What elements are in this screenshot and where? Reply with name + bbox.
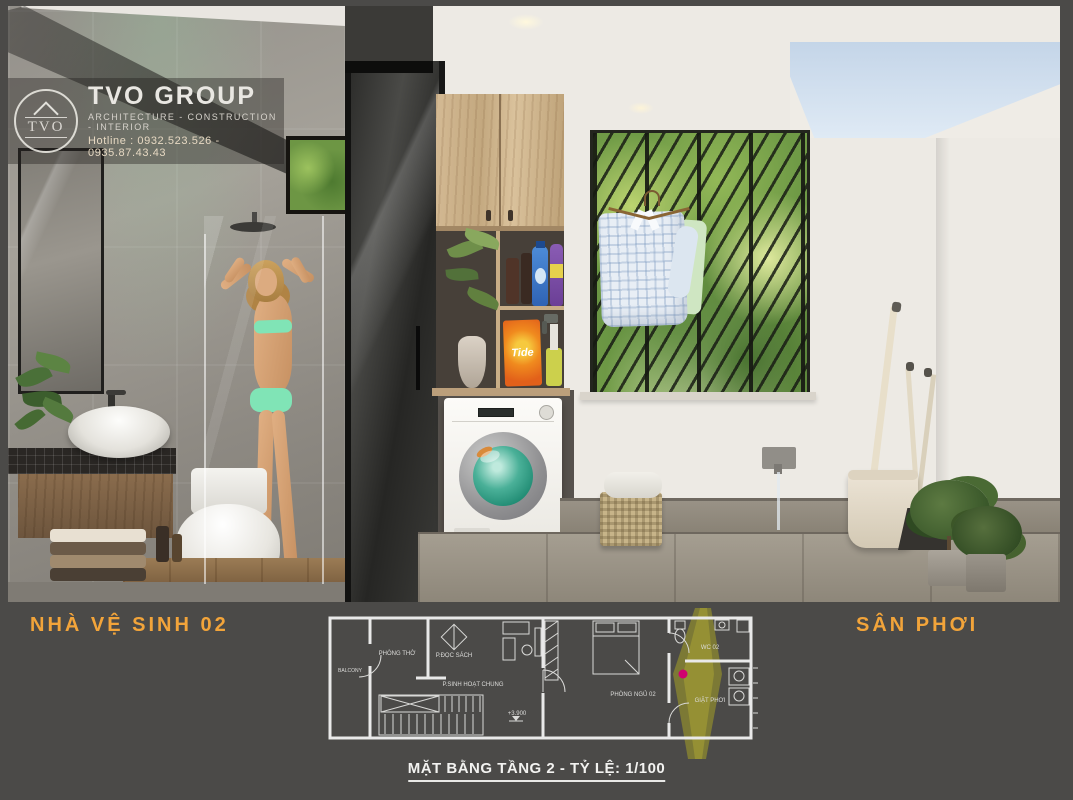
plan-caption: MẶT BẰNG TẦNG 2 - TỶ LỆ: 1/100 — [408, 760, 666, 782]
spray-bottle-trigger — [542, 321, 547, 334]
cabinet-handle — [486, 210, 491, 221]
mop-handle-cap — [891, 301, 901, 312]
plan-room-label-reading: P.ĐỌC SÁCH — [436, 652, 473, 659]
shower-head — [230, 222, 276, 232]
plan-room-label-worship: PHÒNG THỜ — [379, 650, 416, 657]
plan-room-label-laundry: GIẶT PHƠI — [695, 697, 726, 704]
door-glass-reflection — [351, 61, 439, 602]
shower-glass-edge — [204, 234, 206, 584]
washer-display — [478, 408, 514, 417]
towel — [50, 555, 146, 568]
figure-bikini-top — [254, 319, 292, 333]
plan-room-label-wc: WC 02 — [701, 645, 720, 651]
sink-faucet-spout — [106, 390, 126, 395]
ceiling-downlight — [508, 14, 544, 30]
potted-plant-foliage — [952, 506, 1022, 560]
bottle-cap — [536, 241, 545, 248]
plant-vase — [458, 336, 486, 388]
hanger-hook — [644, 190, 660, 206]
laundry-basket — [600, 492, 662, 546]
door-header — [345, 6, 433, 66]
door-handle — [416, 326, 420, 390]
shelf-divider — [500, 306, 564, 310]
ceiling-downlight — [628, 102, 654, 114]
bathroom-floor — [8, 582, 345, 602]
laundry-clothes — [604, 472, 662, 498]
skylight-opening — [790, 42, 1060, 138]
label-bathroom: NHÀ VỆ SINH 02 — [30, 614, 229, 637]
dark-bottle — [506, 258, 519, 304]
figure-face — [255, 268, 277, 296]
figure-bikini-bottom — [250, 388, 292, 412]
location-marker — [679, 670, 688, 679]
bottle-label — [535, 268, 546, 284]
leaf — [14, 405, 45, 434]
plan-level-mark: +3.900 — [508, 711, 527, 717]
amenity-bottle — [156, 526, 169, 562]
company-tagline: ARCHITECTURE - CONSTRUCTION - INTERIOR — [88, 112, 278, 132]
cabinet-door-seam — [499, 94, 501, 226]
roof-fascia — [790, 42, 1060, 138]
presentation-board: Tide — [0, 0, 1073, 800]
bottle-label — [550, 264, 563, 278]
label-drying-yard: SÂN PHƠI — [856, 614, 978, 637]
interior-render: Tide — [8, 6, 1060, 602]
plant-pot — [966, 554, 1006, 592]
detergent-bag: Tide — [503, 319, 542, 386]
shower-glass-edge — [322, 216, 324, 584]
plan-room-label-common: P.SINH HOẠT CHUNG — [442, 682, 503, 688]
plan-room-label-balcony: BALCONY — [338, 668, 363, 674]
water-stream — [777, 472, 780, 530]
washer-knob — [539, 405, 554, 420]
towel-stack — [50, 524, 146, 582]
spray-bottle-body — [546, 348, 562, 386]
window-sill — [580, 392, 816, 400]
company-name: TVO GROUP — [88, 83, 278, 109]
plan-room-label-bedroom: PHÒNG NGỦ 02 — [610, 691, 656, 698]
company-hotline: Hotline : 0932.523.526 - 0935.87.43.43 — [88, 135, 278, 159]
logo-text-block: TVO GROUP ARCHITECTURE - CONSTRUCTION - … — [88, 83, 278, 159]
wall-corner-shadow — [936, 138, 950, 538]
bathroom-window — [286, 136, 354, 214]
mop-handle — [869, 306, 898, 484]
logo-overlay: TVO TVO GROUP ARCHITECTURE - CONSTRUCTIO… — [8, 78, 284, 164]
sliding-glass-door — [345, 61, 445, 602]
towel — [50, 542, 146, 555]
spray-bottle-neck — [550, 324, 558, 350]
towel — [50, 529, 146, 542]
cabinet-bottom-shelf — [432, 388, 570, 396]
cabinet-handle — [508, 210, 513, 221]
figure-torso — [254, 294, 292, 394]
door-top-rail — [345, 61, 433, 73]
floor-plan: BALCONY PHÒNG THỜ P.ĐỌC SÁCH P.SINH HOẠT… — [321, 608, 759, 760]
company-logo-circle: TVO — [14, 89, 78, 153]
vessel-sink — [68, 406, 170, 458]
dustpan-handle-cap — [924, 368, 932, 377]
mop-bucket-rim — [848, 470, 918, 480]
amenity-bottle — [172, 534, 182, 562]
towel — [50, 568, 146, 581]
detergent-brand-text: Tide — [511, 347, 534, 360]
wood-bench — [123, 558, 348, 584]
broom-handle-cap — [906, 362, 914, 371]
dark-bottle — [521, 253, 532, 304]
